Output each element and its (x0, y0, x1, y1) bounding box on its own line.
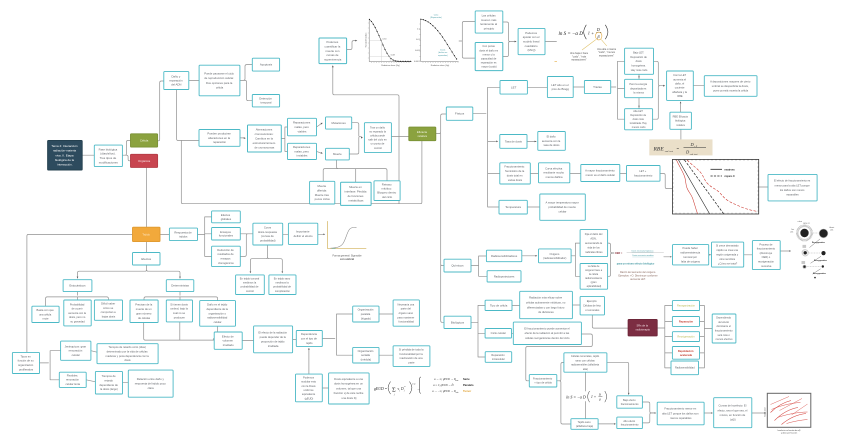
svg-text:aumenta LET.: aumenta LET. (630, 278, 646, 281)
svg-text:Tasa de dosis: Tasa de dosis (505, 139, 523, 143)
svg-text:Dosis necesaria aerobias: Dosis necesaria aerobias (632, 254, 653, 257)
svg-text:Mutaciones: Mutaciones (331, 121, 346, 125)
svg-text:Deterministas: Deterministas (171, 284, 189, 288)
svg-text:para un mismo efecto biológico: para un mismo efecto biológico (617, 263, 655, 266)
svg-text:Razón del aumento del oxígeno.: Razón del aumento del oxígeno. (620, 271, 656, 274)
svg-text:ln S = −α D: ln S = −α D (559, 32, 584, 37)
svg-text:Tipo de célula: Tipo de célula (490, 303, 508, 307)
svg-text:(Reparación): (Reparación) (430, 17, 442, 19)
svg-text:rad. test: rad. test (690, 153, 698, 156)
svg-text:Químicos: Químicos (451, 264, 464, 268)
svg-text:β: β (597, 34, 600, 39)
svg-text:Tejido sano (alfa/beta baj: Tejido sano (alfa/beta baja) (576, 420, 593, 428)
svg-text:Estocásticos: Estocásticos (69, 284, 86, 288)
svg-text:Efecto de volumen irradiado: Efecto de volumen irradiado (222, 334, 235, 347)
svg-text:Ensayos funcionales: Ensayos funcionales (219, 230, 234, 238)
svg-text:Σ: Σ (392, 386, 396, 393)
svg-text:Aberraciones cromosómicas: Cam: Aberraciones cromosómicas: Cambios en la… (253, 128, 276, 150)
svg-text:Orgánica: Orgánica (138, 159, 151, 163)
svg-text:=: = (677, 146, 680, 151)
svg-text:Físicos: Físicos (455, 112, 465, 116)
svg-text:OER =: OER = (615, 252, 623, 255)
svg-text:Temperatura: Temperatura (505, 205, 521, 209)
svg-text:cells: cells (830, 229, 833, 231)
svg-text:Reoxygenation: Reoxygenation (814, 259, 827, 262)
svg-text:D: D (596, 27, 600, 32)
svg-text:Reoxygenation: Reoxygenation (812, 241, 825, 244)
svg-text:(daños no: (daños no (438, 51, 448, 54)
svg-text:0.001: 0.001 (415, 50, 420, 52)
svg-text:max: max (455, 380, 458, 382)
svg-text:Repoblación acelerada: Repoblación acelerada (678, 349, 694, 357)
svg-text:Radioprotectores: Radioprotectores (494, 274, 515, 278)
svg-text:Reoxygenation: Reoxygenation (813, 272, 826, 275)
svg-text:Importante definir el efecto: Importante definir el efecto (294, 230, 313, 238)
svg-text:β: β (598, 397, 601, 401)
svg-text:Muerte: Muerte (333, 152, 342, 156)
svg-text:Reparación: Reparación (679, 319, 694, 323)
svg-text:Paralelo: Paralelo (463, 383, 474, 387)
svg-text:Dosis total: Dosis total (763, 407, 766, 416)
svg-text:Radiosensibilidad: Radiosensibilidad (675, 367, 695, 370)
svg-text:Apoptosis: Apoptosis (260, 63, 273, 67)
svg-text:1 +: 1 + (591, 395, 597, 399)
svg-text:Reorganización: Reorganización (677, 304, 696, 308)
svg-text:Oxic: Oxic (791, 229, 794, 231)
svg-text:0.01: 0.01 (416, 39, 420, 41)
svg-text:Ciclo celular: Ciclo celular (491, 331, 506, 335)
svg-text:0.1: 0.1 (417, 28, 420, 30)
svg-text:a → −∞; gEUD → D: a → −∞; gEUD → D (432, 390, 456, 393)
svg-text:Tumor: Tumor (463, 389, 471, 393)
svg-text:reparaciones": reparaciones" (571, 59, 586, 62)
svg-text:Fraccionamiento + tipo de c: Fraccionamiento + tipo de célula (533, 377, 553, 385)
svg-text:Trazas: Trazas (593, 85, 602, 89)
svg-text:Curva efectiva resultante m: Curva efectiva resultante mucho menos da… (543, 166, 564, 179)
svg-text:0.0001: 0.0001 (414, 61, 420, 63)
svg-text:Serie: Serie (463, 377, 470, 381)
svg-text:neutrons: neutrons (725, 168, 736, 171)
svg-text:rayons X: rayons X (725, 175, 736, 178)
svg-text:min: min (456, 392, 459, 394)
svg-text:Tejido: Tejido (142, 232, 150, 236)
svg-text:cells: cells (790, 231, 793, 233)
svg-text:Biológicos: Biológicos (451, 320, 465, 324)
svg-text:Fija el daño del ADN, aumen: Fija el daño del ADN, aumentando la vida… (585, 232, 604, 254)
svg-text:Célula: Célula (140, 139, 149, 143)
svg-text:Fase biológica (días/años). Tr: Fase biológica (días/años). Tres tipos d… (99, 147, 119, 164)
svg-text:Probabilidad de ocurrir aumen: Probabilidad de ocurrir aumenta con la d… (68, 302, 86, 323)
svg-text:Dosis necesaria hipóxicas: Dosis necesaria hipóxicas (632, 249, 654, 252)
svg-text:Efectos globales: Efectos globales (221, 213, 232, 221)
svg-text:LET: LET (511, 85, 517, 89)
svg-text:Detención temporal: Detención temporal (259, 97, 272, 105)
svg-text:Efectos: Efectos (141, 257, 151, 261)
svg-text:Reoxigenación: Reoxigenación (677, 335, 695, 339)
svg-text:gEUD =: gEUD = (374, 387, 388, 391)
svg-text:A deposiciones mayores de: A deposiciones mayores de cierto umbral … (710, 79, 751, 92)
svg-text:a = 1; gEUD → D̄: a = 1; gEUD → D̄ (433, 384, 453, 387)
svg-text:y dosis por fracción: y dosis por fracción (781, 431, 797, 434)
svg-text:100% O2: 100% O2 (803, 223, 810, 225)
svg-text:LET alto en el pico de Bragg: LET alto en el pico de Bragg (551, 83, 569, 91)
svg-text:rad. test: rad. test (665, 150, 674, 153)
svg-text:Isoefecto en función de α/β: Isoefecto en función de α/β (778, 429, 802, 432)
svg-text:Necesaria una parte del ór: Necesaria una parte del órgano sano para… (397, 302, 415, 323)
svg-text:El fraccionamiento puede: El fraccionamiento puede aumentar el efe… (524, 326, 570, 340)
svg-text:reparados): reparados) (438, 55, 448, 57)
svg-text:Si crece demasiado rápido: Si crece demasiado rápido se crea una re… (716, 244, 740, 266)
svg-text:Radiation dose (Gy): Radiation dose (Gy) (431, 64, 450, 67)
svg-text:Forma general: Sigmoide: Forma general: Sigmoide (332, 253, 362, 257)
svg-text:ln S = −α D: ln S = −α D (566, 395, 586, 400)
svg-text:Ejemplos: +O. Disminuye confor: Ejemplos: +O. Disminuye conforme (618, 274, 658, 277)
svg-text:a → ∞; gEUD → D: a → ∞; gEUD → D (434, 378, 456, 381)
svg-text:reparaciones": reparaciones" (599, 54, 614, 57)
svg-text:RBE: RBE (653, 147, 665, 153)
svg-text:5Rs de la radioterapia: 5Rs de la radioterapia (636, 324, 651, 332)
svg-text:Survival fraction: Survival fraction (365, 32, 368, 48)
svg-text:La falta de oxígeno hace: La falta de oxígeno hace a la célula rad… (585, 265, 603, 288)
svg-text:Radiation dose (Gy): Radiation dose (Gy) (381, 64, 400, 67)
svg-text:1 +: 1 + (588, 30, 594, 35)
svg-text:Radiosensibilizadores: Radiosensibilizadores (491, 254, 518, 258)
svg-text:Flexibles: renovación celular: Flexibles: renovación celular lenta (66, 374, 81, 386)
svg-text:Reparación intracelular: Reparación intracelular (491, 353, 505, 361)
svg-text:+ dosis: + dosis (797, 221, 802, 223)
svg-text:con umbral: con umbral (340, 257, 354, 261)
svg-text:Eficacia relativa: Eficacia relativa (417, 130, 428, 138)
